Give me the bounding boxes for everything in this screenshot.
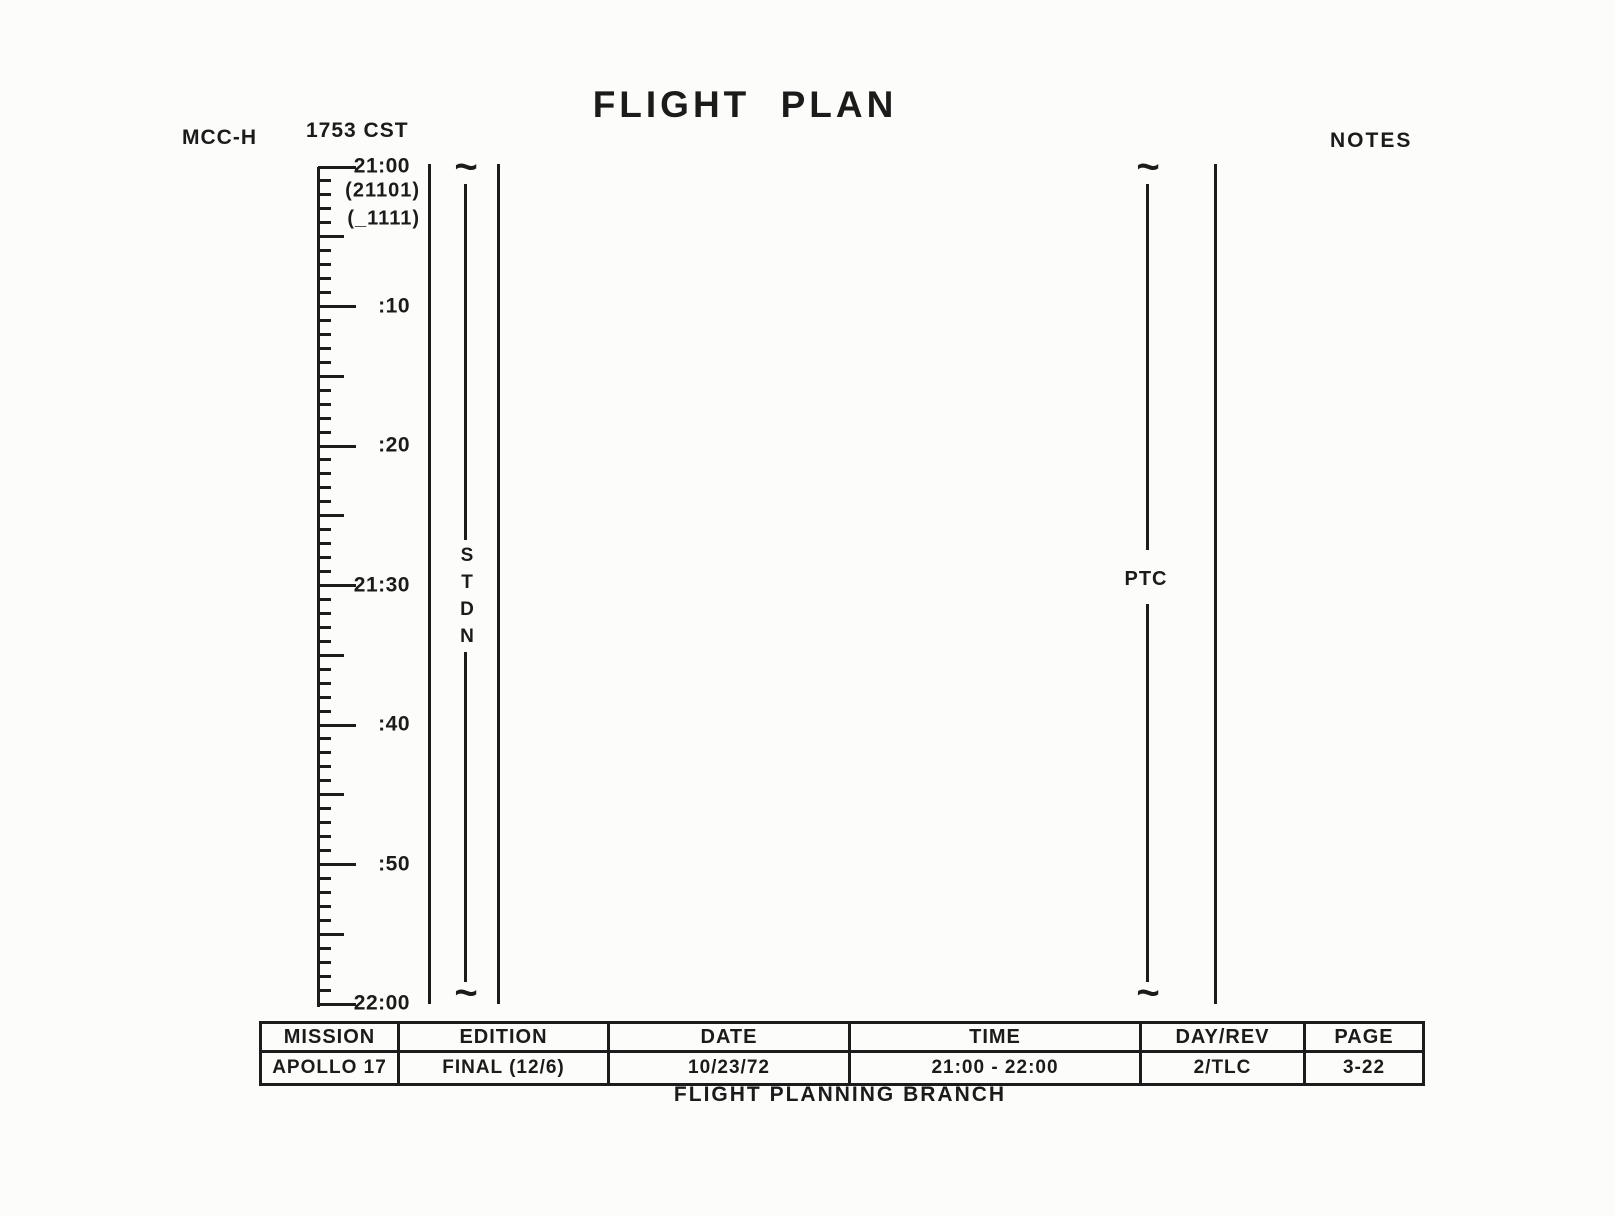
- scale-tick-38min: [318, 696, 331, 699]
- continuation-tilde-icon: ~: [444, 978, 488, 1008]
- scale-tick-37min: [318, 682, 331, 685]
- mission-data-table: MISSIONEDITIONDATETIMEDAY/REVPAGE APOLLO…: [259, 1021, 1425, 1086]
- scale-tick-26min: [318, 528, 331, 531]
- ptc-activity-line-lower: [1146, 604, 1149, 982]
- flight-plan-page: FLIGHT PLAN MCC-H 1753 CST NOTES 21:00:1…: [0, 0, 1615, 1216]
- scale-tick-16min: [318, 389, 331, 392]
- scale-tick-28min: [318, 556, 331, 559]
- table-value-day-rev: 2/TLC: [1141, 1052, 1305, 1085]
- scale-tick-57min: [318, 961, 331, 964]
- scale-time-label: 21:30: [326, 573, 410, 597]
- scale-tick-35min: [318, 654, 344, 657]
- table-value-time: 21:00 - 22:00: [850, 1052, 1141, 1085]
- scale-tick-51min: [318, 877, 331, 880]
- flight-planning-branch-label: FLIGHT PLANNING BRANCH: [590, 1083, 1090, 1107]
- scale-tick-25min: [318, 514, 344, 517]
- scale-tick-14min: [318, 361, 331, 364]
- scale-tick-8min: [318, 277, 331, 280]
- scale-tick-21min: [318, 458, 331, 461]
- ptc-activity-line-upper: [1146, 184, 1149, 550]
- table-header-day-rev: DAY/REV: [1141, 1023, 1305, 1052]
- scale-tick-12min: [318, 333, 331, 336]
- table-header-date: DATE: [609, 1023, 850, 1052]
- ptc-label: PTC: [1125, 568, 1168, 591]
- stdn-right-boundary-line: [497, 164, 500, 1004]
- scale-tick-55min: [318, 933, 344, 936]
- scale-tick-52min: [318, 891, 331, 894]
- table-value-row: APOLLO 17FINAL (12/6)10/23/7221:00 - 22:…: [261, 1052, 1424, 1085]
- table-header-row: MISSIONEDITIONDATETIMEDAY/REVPAGE: [261, 1023, 1424, 1052]
- scale-tick-36min: [318, 668, 331, 671]
- scale-tick-41min: [318, 737, 331, 740]
- scale-tick-58min: [318, 975, 331, 978]
- continuation-tilde-icon: ~: [1126, 152, 1170, 182]
- scale-tick-54min: [318, 919, 331, 922]
- stdn-activity-line-upper: [464, 184, 467, 540]
- scale-tick-33min: [318, 626, 331, 629]
- continuation-tilde-icon: ~: [444, 152, 488, 182]
- scale-tick-47min: [318, 821, 331, 824]
- stdn-activity-line-lower: [464, 652, 467, 982]
- table-header-time: TIME: [850, 1023, 1141, 1052]
- stdn-label: S T D N: [460, 542, 474, 650]
- mcc-h-label: MCC-H: [182, 126, 257, 150]
- scale-tick-23min: [318, 486, 331, 489]
- scale-time-label: 22:00: [326, 992, 410, 1016]
- scale-tick-7min: [318, 263, 331, 266]
- scale-tick-17min: [318, 403, 331, 406]
- table-header-page: PAGE: [1305, 1023, 1424, 1052]
- cst-time-label: 1753 CST: [306, 119, 409, 143]
- page-title: FLIGHT PLAN: [535, 84, 955, 126]
- scale-tick-44min: [318, 779, 331, 782]
- scale-tick-18min: [318, 417, 331, 420]
- table-value-page: 3-22: [1305, 1052, 1424, 1085]
- scale-tick-34min: [318, 640, 331, 643]
- scale-tick-31min: [318, 598, 331, 601]
- scale-tick-56min: [318, 947, 331, 950]
- scale-tick-27min: [318, 542, 331, 545]
- scale-tick-15min: [318, 375, 344, 378]
- table-value-date: 10/23/72: [609, 1052, 850, 1085]
- scale-time-label: 21:00: [326, 155, 410, 179]
- scale-tick-24min: [318, 500, 331, 503]
- table-value-mission: APOLLO 17: [261, 1052, 399, 1085]
- table-header-edition: EDITION: [399, 1023, 609, 1052]
- scale-tick-45min: [318, 793, 344, 796]
- scale-annotation: (21101): [326, 180, 420, 203]
- scale-annotation: (_1111): [326, 208, 420, 231]
- scale-tick-11min: [318, 319, 331, 322]
- scale-time-label: :40: [326, 713, 410, 737]
- scale-tick-42min: [318, 751, 331, 754]
- table-header-mission: MISSION: [261, 1023, 399, 1052]
- scale-time-label: :20: [326, 434, 410, 458]
- scale-tick-48min: [318, 835, 331, 838]
- scale-tick-43min: [318, 765, 331, 768]
- scale-tick-6min: [318, 249, 331, 252]
- notes-column-label: NOTES: [1330, 129, 1412, 153]
- notes-boundary-line: [1214, 164, 1217, 1004]
- scale-tick-22min: [318, 472, 331, 475]
- continuation-tilde-icon: ~: [1126, 978, 1170, 1008]
- scale-tick-46min: [318, 807, 331, 810]
- stdn-left-boundary-line: [428, 164, 431, 1004]
- scale-tick-13min: [318, 347, 331, 350]
- scale-tick-32min: [318, 612, 331, 615]
- scale-tick-5min: [318, 235, 344, 238]
- scale-tick-53min: [318, 905, 331, 908]
- scale-time-label: :10: [326, 294, 410, 318]
- scale-time-label: :50: [326, 852, 410, 876]
- table-value-edition: FINAL (12/6): [399, 1052, 609, 1085]
